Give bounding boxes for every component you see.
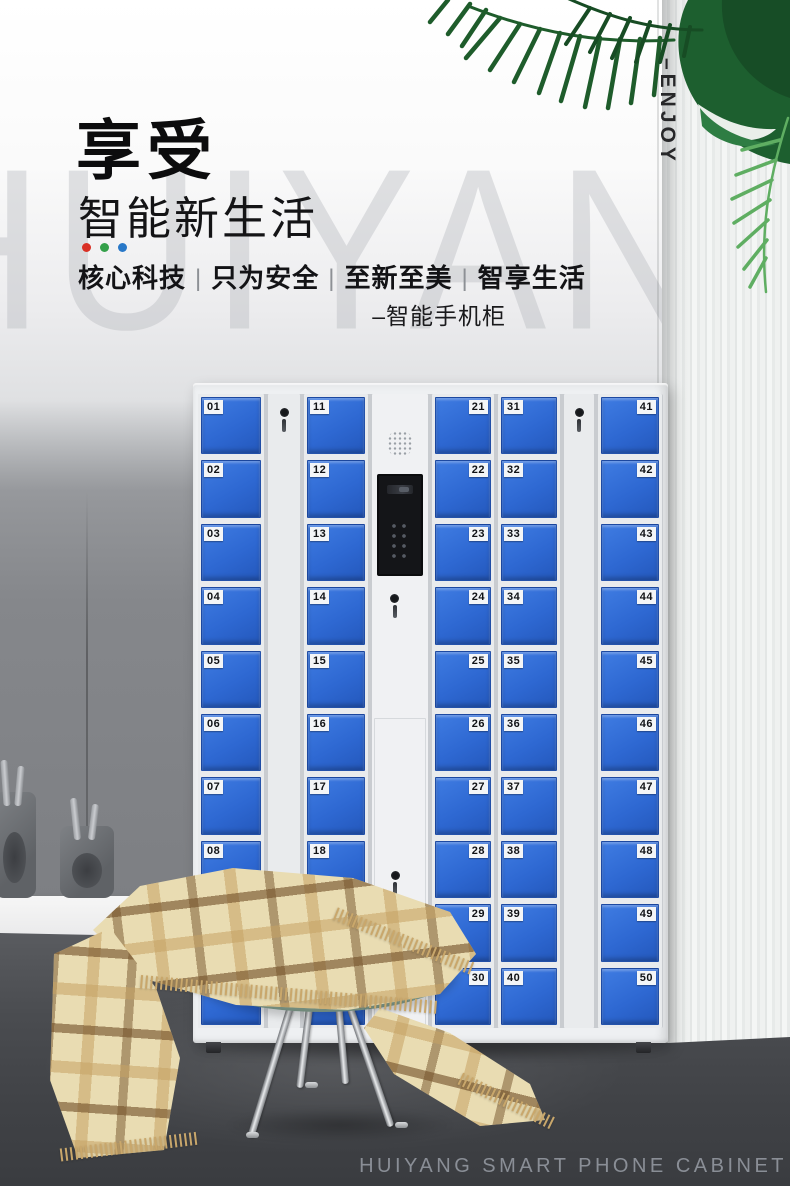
locker-column: 41424344454647484950 [598, 394, 662, 1028]
locker-door-46: 46 [601, 714, 659, 771]
tagline-separator: | [462, 265, 469, 292]
tagline-separator: | [195, 265, 202, 292]
vase-opening [3, 832, 26, 883]
locker-door-26: 26 [435, 714, 491, 771]
tagline: 核心科技|只为安全|至新至美|智享生活 [78, 258, 586, 295]
door-number: 14 [310, 590, 329, 604]
door-number: 17 [310, 780, 329, 794]
locker-door-32: 32 [501, 460, 557, 517]
door-number: 04 [204, 590, 223, 604]
door-number: 44 [637, 590, 656, 604]
door-number: 47 [637, 780, 656, 794]
locker-door-27: 27 [435, 777, 491, 834]
locker-door-50: 50 [601, 968, 659, 1025]
door-number: 22 [469, 463, 488, 477]
door-number: 26 [469, 717, 488, 731]
locker-door-49: 49 [601, 904, 659, 961]
locker-door-23: 23 [435, 524, 491, 581]
locker-door-41: 41 [601, 397, 659, 454]
plaid-blanket [48, 858, 573, 1160]
door-number: 33 [504, 527, 523, 541]
door-number: 31 [504, 400, 523, 414]
decor-vase [0, 792, 36, 898]
locker-door-06: 06 [201, 714, 261, 771]
door-number: 11 [310, 400, 329, 414]
door-number: 41 [637, 400, 656, 414]
locker-door-11: 11 [307, 397, 365, 454]
locker-door-35: 35 [501, 651, 557, 708]
door-number: 36 [504, 717, 523, 731]
locker-door-22: 22 [435, 460, 491, 517]
locker-door-33: 33 [501, 524, 557, 581]
door-number: 48 [637, 844, 656, 858]
door-number: 18 [310, 844, 329, 858]
locker-door-47: 47 [601, 777, 659, 834]
locker-door-13: 13 [307, 524, 365, 581]
door-number: 46 [637, 717, 656, 731]
door-number: 07 [204, 780, 223, 794]
door-number: 45 [637, 654, 656, 668]
door-number: 16 [310, 717, 329, 731]
door-number: 42 [637, 463, 656, 477]
locker-door-05: 05 [201, 651, 261, 708]
door-number: 38 [504, 844, 523, 858]
headline-title: 享受 [76, 98, 218, 192]
tagline-segment: 智享生活 [478, 263, 586, 293]
headline-subtitle: 智能新生活 [78, 182, 318, 247]
tagline-separator: | [328, 265, 335, 292]
door-number: 05 [204, 654, 223, 668]
door-number: 13 [310, 527, 329, 541]
locker-door-44: 44 [601, 587, 659, 644]
keyhole-icon [571, 408, 587, 438]
door-number: 06 [204, 717, 223, 731]
tagline-segment: 至新至美 [345, 263, 453, 293]
door-number: 35 [504, 654, 523, 668]
locker-door-03: 03 [201, 524, 261, 581]
locker-door-48: 48 [601, 841, 659, 898]
door-number: 01 [204, 400, 223, 414]
keyhole-icon [387, 594, 403, 624]
locker-door-24: 24 [435, 587, 491, 644]
camera-icon [387, 485, 414, 494]
door-number: 49 [637, 907, 656, 921]
door-number: 21 [469, 400, 488, 414]
tagline-segment: 核心科技 [78, 263, 186, 293]
accent-dot-green [100, 243, 109, 252]
footer-caption: HUIYANG SMART PHONE CABINET [359, 1155, 787, 1178]
door-number: 43 [637, 527, 656, 541]
door-number: 24 [469, 590, 488, 604]
locker-door-17: 17 [307, 777, 365, 834]
door-number: 12 [310, 463, 329, 477]
locker-door-25: 25 [435, 651, 491, 708]
locker-door-16: 16 [307, 714, 365, 771]
door-number: 03 [204, 527, 223, 541]
door-number: 37 [504, 780, 523, 794]
accent-dot-red [82, 243, 91, 252]
keyhole-icon [276, 408, 292, 438]
locker-door-15: 15 [307, 651, 365, 708]
door-number: 34 [504, 590, 523, 604]
locker-door-02: 02 [201, 460, 261, 517]
door-number: 32 [504, 463, 523, 477]
door-number: 02 [204, 463, 223, 477]
locker-door-45: 45 [601, 651, 659, 708]
intercom-panel [377, 474, 423, 576]
locker-door-01: 01 [201, 397, 261, 454]
accent-dots [82, 243, 127, 252]
door-number: 15 [310, 654, 329, 668]
product-caption: –智能手机柜 [0, 297, 506, 331]
locker-door-21: 21 [435, 397, 491, 454]
locker-door-43: 43 [601, 524, 659, 581]
locker-door-12: 12 [307, 460, 365, 517]
tagline-segment: 只为安全 [211, 263, 319, 293]
door-number: 23 [469, 527, 488, 541]
locker-door-36: 36 [501, 714, 557, 771]
locker-door-04: 04 [201, 587, 261, 644]
locker-door-34: 34 [501, 587, 557, 644]
locker-door-37: 37 [501, 777, 557, 834]
keypad-icon [388, 520, 412, 562]
enjoy-vertical-text: –ENJOY [655, 58, 679, 165]
locker-door-42: 42 [601, 460, 659, 517]
door-number: 25 [469, 654, 488, 668]
door-number: 08 [204, 844, 223, 858]
locker-door-07: 07 [201, 777, 261, 834]
speaker-grille-icon [387, 430, 414, 457]
door-number: 28 [469, 844, 488, 858]
door-number: 50 [637, 971, 656, 985]
locker-door-14: 14 [307, 587, 365, 644]
accent-dot-blue [118, 243, 127, 252]
door-number: 27 [469, 780, 488, 794]
locker-door-31: 31 [501, 397, 557, 454]
cabinet-foot [636, 1042, 651, 1053]
